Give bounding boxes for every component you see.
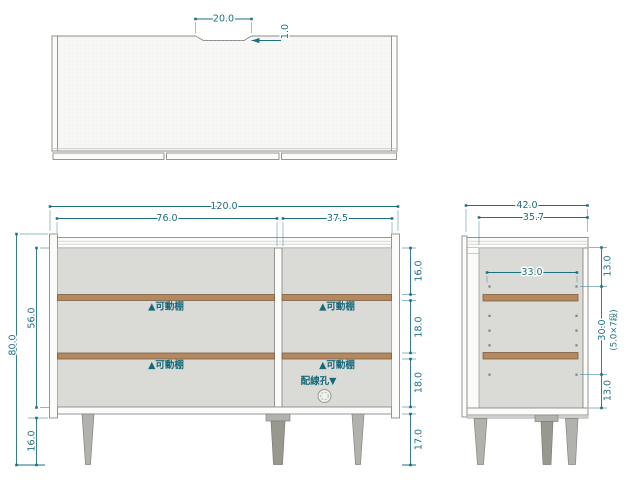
front-left-leg: [82, 414, 94, 465]
top-view-door-strip-right: [282, 153, 397, 160]
side-back-panel-edge: [462, 236, 467, 417]
movable-shelf-label: ▲可動棚: [319, 359, 355, 371]
furniture-dimension-drawing: 20.0 1.0 ▲可動棚 ▲可動棚 ▲可動棚 ▲可動棚 配線孔▼: [0, 0, 640, 486]
top-view-door-strip-middle: [167, 153, 280, 160]
front-center-leg-plate: [266, 414, 290, 421]
front-top-panel: [58, 238, 392, 249]
front-right-interior: [282, 248, 392, 407]
front-center-divider: [275, 248, 283, 407]
top-view-right-side-panel: [392, 36, 398, 151]
side-front-edge: [583, 248, 588, 408]
side-center-leg-plate: [535, 415, 558, 422]
notch-depth-dim: 1.0: [280, 24, 291, 39]
front-shelf-upper-right: [282, 295, 392, 301]
top-view-door-strip-left: [53, 153, 164, 160]
floor-clearance-dim: 17.0: [414, 429, 425, 450]
front-bottom-panel: [58, 407, 392, 414]
front-shelf-lower-left: [58, 353, 275, 359]
side-bottom-panel: [467, 408, 588, 415]
top-view: 20.0 1.0: [52, 14, 397, 160]
front-right-leg: [352, 414, 364, 465]
shelf-depth-dim: 33.0: [521, 267, 542, 278]
side-back-leg: [566, 419, 579, 465]
total-height-dim: 80.0: [8, 334, 19, 355]
front-shelf-lower-right: [282, 353, 392, 359]
cable-hole-grommet: [318, 390, 331, 403]
leg-height-dim: 16.0: [27, 430, 38, 451]
side-shelf-lower: [483, 353, 578, 360]
right-section-width-dim: 37.5: [327, 213, 348, 224]
front-view: ▲可動棚 ▲可動棚 ▲可動棚 ▲可動棚 配線孔▼ 120.0 76.0 37.5…: [8, 201, 425, 466]
side-front-leg: [474, 419, 487, 465]
notch-width-dim: 20.0: [213, 14, 234, 25]
front-right-stile: [392, 234, 400, 418]
top-space-dim: 16.0: [414, 260, 425, 281]
grommet-outer-ring: [318, 390, 331, 403]
left-section-width-dim: 76.0: [156, 213, 177, 224]
interior-height-dim: 56.0: [27, 307, 38, 328]
bottom-offset-dim: 13.0: [603, 380, 614, 401]
middle-space-dim: 18.0: [414, 316, 425, 337]
side-base-shadow-strip: [467, 415, 588, 418]
movable-shelf-label: ▲可動棚: [148, 359, 184, 371]
front-left-interior: [58, 248, 275, 407]
side-top-panel: [467, 238, 588, 249]
total-width-dim: 120.0: [210, 201, 237, 212]
cable-hole-label: 配線孔▼: [301, 375, 338, 387]
drawing-canvas: 20.0 1.0 ▲可動棚 ▲可動棚 ▲可動棚 ▲可動棚 配線孔▼: [0, 0, 640, 486]
movable-shelf-label: ▲可動棚: [148, 301, 184, 313]
lower-space-dim: 18.0: [414, 372, 425, 393]
top-offset-dim: 13.0: [603, 255, 614, 276]
inner-depth-dim: 35.7: [523, 212, 544, 223]
movable-shelf-label: ▲可動棚: [319, 301, 355, 313]
front-shelf-upper-left: [58, 295, 275, 301]
side-back-rail-region: [468, 248, 480, 408]
side-center-leg: [541, 422, 553, 465]
total-depth-dim: 42.0: [516, 200, 537, 211]
hole-span-dim: 30.0: [597, 319, 608, 340]
hole-pitch-note: (5.0×7段): [609, 309, 620, 350]
front-left-stile: [50, 234, 58, 418]
side-shelf-upper: [483, 295, 578, 302]
front-center-leg: [271, 421, 285, 465]
top-view-left-side-panel: [52, 36, 58, 151]
side-view: 42.0 35.7 33.0 13.0 30.0 (5.0×7段) 13.0: [462, 200, 620, 465]
top-view-surface-texture: [52, 36, 397, 151]
